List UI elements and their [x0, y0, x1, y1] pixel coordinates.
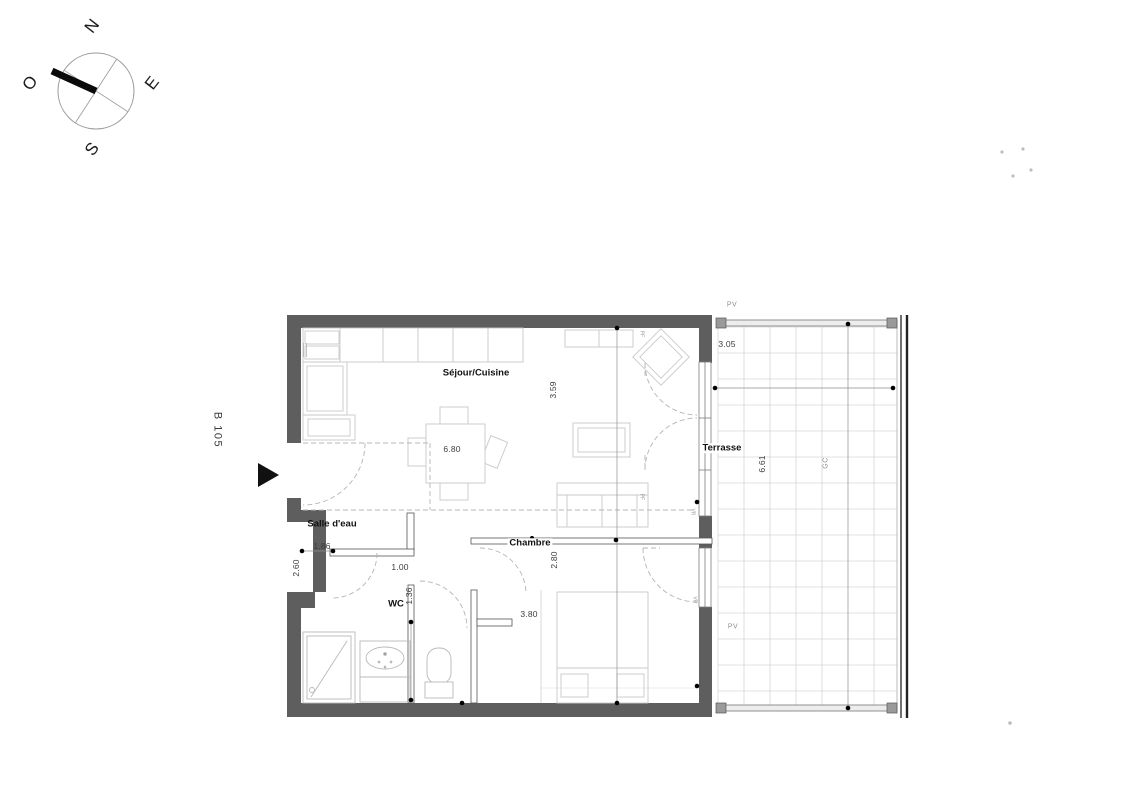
unit-number-label: B 105 — [212, 412, 223, 448]
dim-entry-wall: 2.60 — [292, 559, 301, 576]
partition-entry-sde — [407, 513, 414, 553]
terrace-grid-vertical — [718, 327, 874, 706]
terrace-grid-horizontal — [718, 327, 897, 691]
wall-right-lower — [699, 607, 712, 717]
railing-post — [887, 703, 897, 713]
terrace — [716, 315, 907, 718]
room-label-sejour: Séjour/Cuisine — [443, 368, 510, 378]
wall-left-lower — [287, 608, 301, 703]
dimension-dots — [300, 322, 896, 711]
bed — [557, 592, 648, 703]
dimension-lines — [302, 324, 893, 708]
dim-wc-depth: 1.36 — [405, 587, 414, 604]
partition-stub — [477, 619, 512, 626]
faucet — [384, 653, 387, 656]
chair — [440, 483, 468, 500]
dim-salle-deau-width: 1.86 — [313, 542, 330, 551]
partition-wc-right — [471, 590, 477, 703]
mark-pv-bottom: PV — [728, 624, 738, 631]
railing-top — [718, 320, 897, 326]
kitchen-units — [303, 328, 523, 440]
toilet-tank — [425, 682, 453, 698]
dim-chambre-width: 3.80 — [520, 610, 537, 619]
partition-sde-top — [330, 549, 414, 556]
dim-door-width: 1.00 — [391, 563, 408, 572]
french-door-arcs — [645, 363, 697, 470]
sofa — [557, 483, 648, 527]
wc-door-arc — [420, 581, 467, 628]
kitchen-counter — [303, 328, 523, 362]
wall-left-niche — [313, 522, 326, 592]
windows — [699, 362, 711, 607]
bathroom-fixtures — [303, 632, 453, 703]
dim-terrasse-depth: 6.61 — [758, 455, 767, 472]
mark-vr-sejour: VR — [690, 509, 695, 516]
floor-plan-drawing — [0, 0, 1132, 800]
sde-door-arc — [332, 553, 377, 598]
dim-sejour-width: 6.80 — [443, 445, 460, 454]
mark-pf-top: PF — [639, 331, 644, 337]
living-furniture — [557, 329, 689, 527]
room-label-terrasse: Terrasse — [701, 443, 744, 453]
wall-left-upper — [287, 328, 301, 443]
wall-bottom — [287, 703, 712, 717]
room-label-wc: WC — [388, 599, 404, 609]
wall-left-stub — [287, 498, 301, 512]
chair — [440, 407, 468, 424]
wall-right-upper — [699, 328, 712, 363]
compass-rose — [43, 38, 148, 143]
entrance-arrow — [258, 463, 279, 487]
railing-post — [716, 703, 726, 713]
railing-bottom — [718, 705, 897, 711]
vanity — [360, 641, 410, 677]
floor-plan-page: N O E S B 105 Séjour/Cuisine Salle d'eau… — [0, 0, 1132, 800]
railing-post — [887, 318, 897, 328]
pillow — [617, 674, 644, 697]
dim-chambre-depth: 2.80 — [550, 551, 559, 568]
room-label-salle-deau: Salle d'eau — [307, 519, 356, 529]
room-label-chambre: Chambre — [507, 538, 552, 548]
entry-door-arc — [303, 443, 365, 505]
shower-drain — [310, 688, 315, 693]
chair — [408, 438, 426, 466]
mark-pv-top: PV — [727, 302, 737, 309]
railing-post — [716, 318, 726, 328]
mark-vr-chambre: VR — [692, 597, 697, 604]
dim-sejour-depth: 3.59 — [549, 381, 558, 398]
dim-terrasse-width: 3.05 — [718, 340, 735, 349]
mark-gc: GC — [823, 457, 830, 469]
bedroom-furniture — [541, 590, 697, 703]
mark-pf-bottom: PF — [639, 494, 644, 500]
kitchen-fridge — [303, 362, 347, 415]
wall-left-jog-bottom — [287, 592, 315, 608]
wall-top — [287, 315, 712, 328]
chambre-door-arc — [480, 548, 526, 594]
stray-marks — [1000, 147, 1032, 724]
toilet-bowl — [427, 648, 451, 684]
chambre-window-door-arc — [643, 548, 697, 602]
pillow — [561, 674, 588, 697]
